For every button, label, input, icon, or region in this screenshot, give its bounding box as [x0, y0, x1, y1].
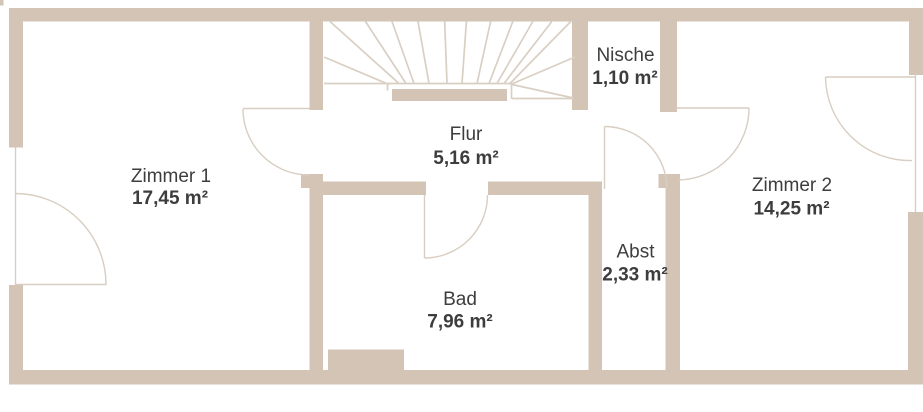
svg-text:17,45 m²: 17,45 m²: [132, 188, 208, 209]
svg-text:Nische: Nische: [596, 45, 654, 66]
svg-text:Zimmer 1: Zimmer 1: [131, 166, 211, 187]
svg-text:2,33 m²: 2,33 m²: [602, 265, 667, 286]
svg-text:5,16 m²: 5,16 m²: [433, 148, 498, 169]
svg-text:Bad: Bad: [443, 289, 477, 310]
svg-text:1,10 m²: 1,10 m²: [592, 68, 657, 89]
svg-text:14,25 m²: 14,25 m²: [753, 199, 829, 220]
svg-text:7,96 m²: 7,96 m²: [427, 312, 492, 333]
svg-text:Zimmer 2: Zimmer 2: [752, 175, 832, 196]
svg-text:Flur: Flur: [450, 124, 483, 145]
svg-text:Abst: Abst: [616, 242, 655, 263]
